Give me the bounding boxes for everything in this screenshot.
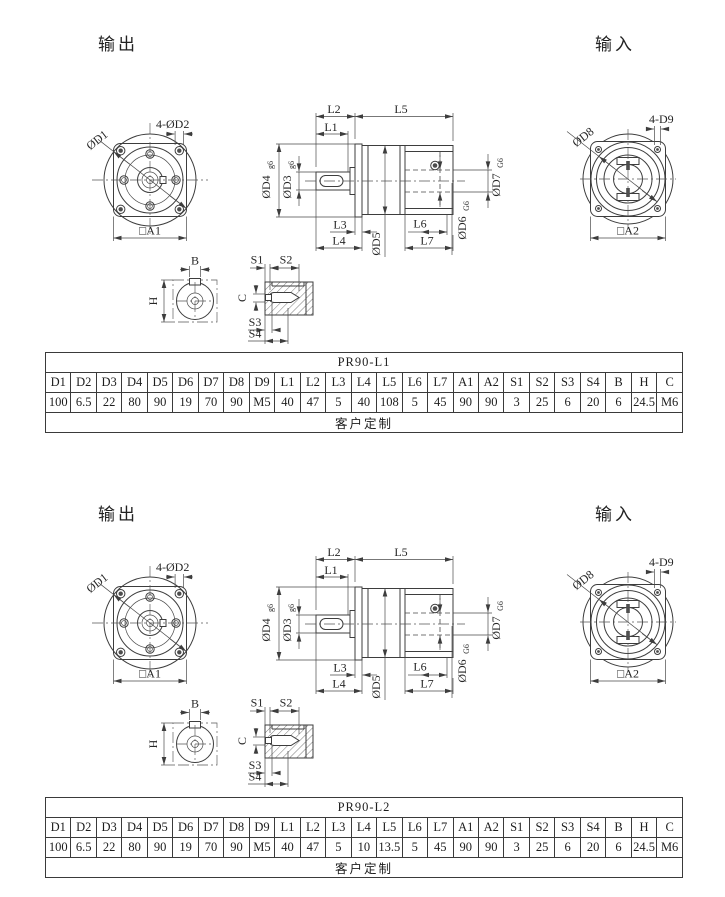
dim-label-d1: ØD1 [83, 570, 110, 595]
output-flange-front-view: ØD1 4-ØD2 □A1 [83, 117, 208, 241]
output-direction-label: 输出 [98, 500, 138, 525]
dim-label-l6: L6 [413, 660, 426, 674]
dim-label-a1: □A1 [139, 224, 161, 238]
dim-label-d1: ØD1 [83, 127, 110, 152]
dim-value-cell: 5 [402, 393, 427, 413]
dim-header-cell: A1 [453, 373, 478, 393]
dim-value-cell: 90 [453, 393, 478, 413]
dim-header-cell: D7 [198, 818, 223, 838]
dim-header-cell: L5 [377, 373, 402, 393]
input-flange-rear-view: ØD8 4-D9 □A2 [567, 112, 676, 241]
table-header-row: D1D2D3D4D5D6D7D8D9L1L2L3L4L5L6L7A1A2S1S2… [46, 818, 683, 838]
dim-label-d4-fit: g6 [266, 604, 275, 612]
dim-header-cell: S4 [580, 818, 605, 838]
dim-header-cell: D1 [46, 818, 71, 838]
dim-label-l5: L5 [394, 545, 407, 559]
dim-value-cell: 47 [300, 838, 325, 858]
dim-header-cell: C [657, 818, 683, 838]
dim-label-d9-holes: 4-D9 [649, 555, 674, 569]
table-note: 客户定制 [46, 858, 683, 878]
dim-header-cell: S2 [529, 818, 554, 838]
dim-header-cell: D2 [71, 818, 96, 838]
dim-label-d7: ØD7 [489, 616, 503, 639]
dim-label-c: C [235, 737, 249, 745]
dim-value-cell: M6 [657, 838, 683, 858]
dim-header-cell: D9 [249, 818, 274, 838]
dim-label-l2: L2 [327, 102, 340, 116]
dim-value-cell: 40 [351, 393, 376, 413]
dim-header-cell: A1 [453, 818, 478, 838]
dim-value-cell: 3 [504, 838, 529, 858]
dim-value-cell: 24.5 [631, 838, 656, 858]
dim-header-cell: L3 [326, 818, 351, 838]
dim-value-cell: 3 [504, 393, 529, 413]
dim-header-cell: H [631, 818, 656, 838]
dim-header-cell: S1 [504, 818, 529, 838]
dim-label-d3-fit: g6 [287, 161, 296, 169]
dim-value-cell: 80 [122, 838, 147, 858]
dim-label-s2: S2 [280, 696, 293, 710]
dim-label-l4: L4 [332, 677, 345, 691]
dim-label-l7: L7 [420, 234, 433, 248]
drawing-sheet: 输出 输入 ØD1 4-ØD2 [0, 0, 725, 897]
technical-drawing-area: ØD1 4-ØD2 □A1 L2 L5 [0, 95, 725, 345]
dim-value-cell: M6 [657, 393, 683, 413]
dim-label-d5: ØD5 [369, 675, 383, 698]
dim-label-d2-holes: 4-ØD2 [156, 117, 189, 131]
dim-label-d4: ØD4 [259, 175, 273, 198]
table-title: PR90-L2 [46, 798, 683, 818]
dim-header-cell: L1 [275, 373, 300, 393]
dim-value-cell: 90 [147, 838, 172, 858]
dim-header-cell: D6 [173, 818, 198, 838]
dim-label-h: H [146, 296, 160, 305]
dim-label-s2: S2 [280, 253, 293, 267]
dim-label-l7: L7 [420, 677, 433, 691]
dim-label-s4: S4 [249, 770, 262, 784]
dim-label-l3: L3 [333, 661, 346, 675]
dim-header-cell: L6 [402, 818, 427, 838]
dim-value-cell: 20 [580, 838, 605, 858]
dim-label-d6-fit: G6 [462, 644, 471, 654]
dim-header-cell: B [606, 818, 631, 838]
dim-header-cell: D7 [198, 373, 223, 393]
dim-header-cell: D5 [147, 818, 172, 838]
gearbox-side-view: L2 L5 L1 ØD4 g6 ØD3 g6 L3 L4 ØD5 [259, 545, 505, 700]
dim-label-b: B [191, 254, 199, 268]
dim-value-cell: 19 [173, 838, 198, 858]
dim-value-cell: 90 [453, 838, 478, 858]
dim-label-d3: ØD3 [280, 618, 294, 641]
dim-header-cell: D4 [122, 818, 147, 838]
dim-header-cell: B [606, 373, 631, 393]
dim-header-cell: L4 [351, 818, 376, 838]
dim-header-cell: L7 [428, 373, 453, 393]
dim-value-cell: 108 [377, 393, 402, 413]
dim-label-l3: L3 [333, 218, 346, 232]
dim-value-cell: 5 [402, 838, 427, 858]
dim-label-s1: S1 [251, 253, 264, 267]
dim-value-cell: 10 [351, 838, 376, 858]
dim-label-l6: L6 [413, 217, 426, 231]
dim-value-cell: 22 [96, 838, 121, 858]
table-note-row: 客户定制 [46, 858, 683, 878]
dim-label-s4: S4 [249, 327, 262, 341]
section-pr90-l1: 输出 输入 ØD1 4-ØD2 [0, 0, 725, 450]
dim-value-cell: 90 [224, 838, 249, 858]
table-note-row: 客户定制 [46, 413, 683, 433]
dim-header-cell: S4 [580, 373, 605, 393]
dim-value-cell: 6 [606, 838, 631, 858]
dim-label-d7-fit: G6 [496, 158, 505, 168]
dim-label-a1: □A1 [139, 667, 161, 681]
dim-label-a2: □A2 [617, 224, 639, 238]
output-direction-label: 输出 [98, 30, 138, 55]
input-direction-label: 输入 [595, 30, 635, 55]
dim-header-cell: L1 [275, 818, 300, 838]
dim-header-cell: A2 [478, 373, 503, 393]
dim-label-s1: S1 [251, 696, 264, 710]
dimension-table: PR90-L2 D1D2D3D4D5D6D7D8D9L1L2L3L4L5L6L7… [45, 797, 683, 878]
table-value-row: 1006.5228090197090M5404751013.5545909032… [46, 838, 683, 858]
gearbox-technical-drawing: ØD1 4-ØD2 □A1 L2 L5 [0, 95, 725, 345]
dim-header-cell: L3 [326, 373, 351, 393]
table-title-row: PR90-L1 [46, 353, 683, 373]
dim-value-cell: 100 [46, 838, 71, 858]
dim-header-cell: D3 [96, 818, 121, 838]
dim-header-cell: S2 [529, 373, 554, 393]
dim-header-cell: C [657, 373, 683, 393]
dim-header-cell: H [631, 373, 656, 393]
dim-value-cell: 40 [275, 393, 300, 413]
dim-header-cell: D6 [173, 373, 198, 393]
dim-label-d6-fit: G6 [462, 201, 471, 211]
dim-header-cell: L7 [428, 818, 453, 838]
dim-value-cell: 70 [198, 838, 223, 858]
dim-value-cell: 25 [529, 838, 554, 858]
dim-value-cell: 47 [300, 393, 325, 413]
dim-header-cell: S3 [555, 373, 580, 393]
dim-label-d7-fit: G6 [496, 601, 505, 611]
dim-value-cell: 13.5 [377, 838, 402, 858]
table-value-row: 1006.5228090197090M540475401085459090325… [46, 393, 683, 413]
keyway-section-detail: C S1 S2 S3 S4 [235, 253, 313, 345]
technical-drawing-area: ØD1 4-ØD2 □A1 L2 L5 [0, 538, 725, 788]
dim-label-l5: L5 [394, 102, 407, 116]
input-flange-rear-view: ØD8 4-D9 □A2 [567, 555, 676, 684]
dim-value-cell: 90 [224, 393, 249, 413]
dim-label-l4: L4 [332, 234, 345, 248]
dim-label-c: C [235, 294, 249, 302]
dim-label-d6: ØD6 [455, 659, 469, 682]
dim-header-cell: L4 [351, 373, 376, 393]
dim-label-l2: L2 [327, 545, 340, 559]
dim-value-cell: 20 [580, 393, 605, 413]
dim-value-cell: 24.5 [631, 393, 656, 413]
dim-label-d5: ØD5 [369, 232, 383, 255]
dim-value-cell: 80 [122, 393, 147, 413]
dim-label-d9-holes: 4-D9 [649, 112, 674, 126]
dim-value-cell: M5 [249, 838, 274, 858]
dim-label-d3: ØD3 [280, 175, 294, 198]
dim-label-d4: ØD4 [259, 618, 273, 641]
dim-value-cell: 22 [96, 393, 121, 413]
dim-label-d6: ØD6 [455, 216, 469, 239]
dim-value-cell: 90 [478, 393, 503, 413]
dim-header-cell: D9 [249, 373, 274, 393]
table-header-row: D1D2D3D4D5D6D7D8D9L1L2L3L4L5L6L7A1A2S1S2… [46, 373, 683, 393]
dim-value-cell: 40 [275, 838, 300, 858]
table-title-row: PR90-L2 [46, 798, 683, 818]
section-pr90-l2: 输出 输入 ØD1 4-ØD2 [0, 470, 725, 897]
dim-header-cell: D4 [122, 373, 147, 393]
dim-header-cell: D5 [147, 373, 172, 393]
shaft-key-cross-section-detail: B H [146, 254, 217, 323]
dim-value-cell: 90 [147, 393, 172, 413]
dim-header-cell: S1 [504, 373, 529, 393]
dim-header-cell: D1 [46, 373, 71, 393]
dim-label-h: H [146, 739, 160, 748]
dim-header-cell: L2 [300, 818, 325, 838]
gearbox-technical-drawing: ØD1 4-ØD2 □A1 L2 L5 [0, 538, 725, 788]
dim-header-cell: L5 [377, 818, 402, 838]
dim-value-cell: 25 [529, 393, 554, 413]
dim-header-cell: S3 [555, 818, 580, 838]
dimension-table: PR90-L1 D1D2D3D4D5D6D7D8D9L1L2L3L4L5L6L7… [45, 352, 683, 433]
dim-header-cell: L6 [402, 373, 427, 393]
dim-label-a2: □A2 [617, 667, 639, 681]
dim-value-cell: 45 [428, 393, 453, 413]
dim-value-cell: 70 [198, 393, 223, 413]
dim-value-cell: 5 [326, 838, 351, 858]
dim-header-cell: D8 [224, 373, 249, 393]
dim-value-cell: 19 [173, 393, 198, 413]
table-note: 客户定制 [46, 413, 683, 433]
dim-header-cell: D3 [96, 373, 121, 393]
dim-label-l1: L1 [324, 563, 337, 577]
dim-label-d4-fit: g6 [266, 161, 275, 169]
output-flange-front-view: ØD1 4-ØD2 □A1 [83, 560, 208, 684]
dim-value-cell: 100 [46, 393, 71, 413]
dim-value-cell: 6.5 [71, 838, 96, 858]
dim-value-cell: 6 [555, 393, 580, 413]
dim-value-cell: 6.5 [71, 393, 96, 413]
dim-value-cell: 6 [606, 393, 631, 413]
dim-header-cell: A2 [478, 818, 503, 838]
keyway-section-detail: C S1 S2 S3 S4 [235, 696, 313, 788]
input-direction-label: 输入 [595, 500, 635, 525]
table-title: PR90-L1 [46, 353, 683, 373]
dim-value-cell: M5 [249, 393, 274, 413]
shaft-key-cross-section-detail: B H [146, 697, 217, 766]
dim-label-d2-holes: 4-ØD2 [156, 560, 189, 574]
dim-label-d3-fit: g6 [287, 604, 296, 612]
dim-value-cell: 45 [428, 838, 453, 858]
dim-label-b: B [191, 697, 199, 711]
dim-label-d7: ØD7 [489, 173, 503, 196]
gearbox-side-view: L2 L5 L1 ØD4 g6 ØD3 g6 L3 L4 ØD5 [259, 102, 505, 257]
dim-label-l1: L1 [324, 120, 337, 134]
dim-value-cell: 90 [478, 838, 503, 858]
dim-header-cell: D2 [71, 373, 96, 393]
dim-value-cell: 5 [326, 393, 351, 413]
dim-header-cell: D8 [224, 818, 249, 838]
dim-header-cell: L2 [300, 373, 325, 393]
dim-value-cell: 6 [555, 838, 580, 858]
